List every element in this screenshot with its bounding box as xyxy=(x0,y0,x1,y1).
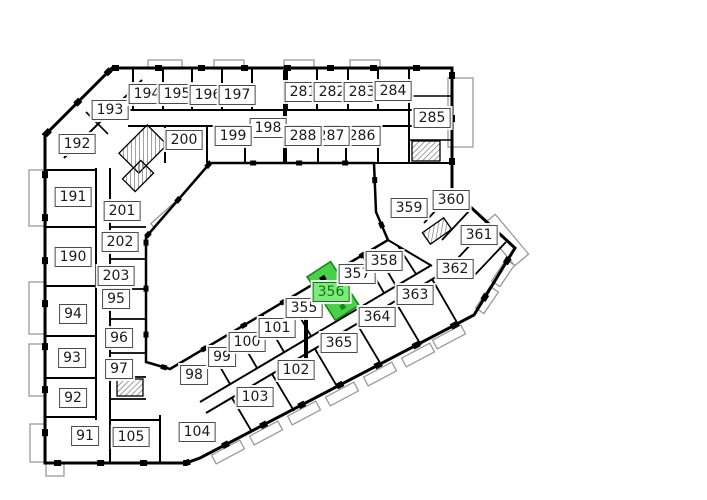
room-label-193[interactable]: 193 xyxy=(92,100,129,120)
room-label-103[interactable]: 103 xyxy=(237,387,274,407)
room-label-358[interactable]: 358 xyxy=(366,251,403,271)
room-label-190[interactable]: 190 xyxy=(55,247,92,267)
room-label-359[interactable]: 359 xyxy=(391,198,428,218)
floor-plan: 9192939495969798991001011021031041051901… xyxy=(0,0,707,500)
room-label-104[interactable]: 104 xyxy=(179,422,216,442)
room-label-192[interactable]: 192 xyxy=(59,134,96,154)
room-label-191[interactable]: 191 xyxy=(55,187,92,207)
room-label-98[interactable]: 98 xyxy=(180,365,208,385)
room-label-102[interactable]: 102 xyxy=(278,360,315,380)
room-label-93[interactable]: 93 xyxy=(58,348,86,368)
room-label-284[interactable]: 284 xyxy=(375,81,412,101)
room-label-101[interactable]: 101 xyxy=(259,318,296,338)
room-label-95[interactable]: 95 xyxy=(102,289,130,309)
room-label-365[interactable]: 365 xyxy=(321,333,358,353)
room-label-91[interactable]: 91 xyxy=(71,426,99,446)
room-label-96[interactable]: 96 xyxy=(105,328,133,348)
room-label-92[interactable]: 92 xyxy=(59,388,87,408)
room-label-201[interactable]: 201 xyxy=(104,201,141,221)
room-label-198[interactable]: 198 xyxy=(250,118,287,138)
room-label-288[interactable]: 288 xyxy=(285,126,322,146)
room-label-361[interactable]: 361 xyxy=(461,225,498,245)
room-label-97[interactable]: 97 xyxy=(105,359,133,379)
room-label-94[interactable]: 94 xyxy=(59,304,87,324)
room-label-203[interactable]: 203 xyxy=(98,266,135,286)
room-label-364[interactable]: 364 xyxy=(359,307,396,327)
room-label-202[interactable]: 202 xyxy=(102,232,139,252)
room-label-200[interactable]: 200 xyxy=(166,130,203,150)
room-label-360[interactable]: 360 xyxy=(433,190,470,210)
room-label-197[interactable]: 197 xyxy=(219,85,256,105)
room-label-356[interactable]: 356 xyxy=(313,282,350,302)
room-label-199[interactable]: 199 xyxy=(215,126,252,146)
room-label-285[interactable]: 285 xyxy=(414,108,451,128)
room-label-363[interactable]: 363 xyxy=(397,285,434,305)
room-label-105[interactable]: 105 xyxy=(113,427,150,447)
room-labels-layer: 9192939495969798991001011021031041051901… xyxy=(0,0,707,500)
room-label-362[interactable]: 362 xyxy=(437,259,474,279)
